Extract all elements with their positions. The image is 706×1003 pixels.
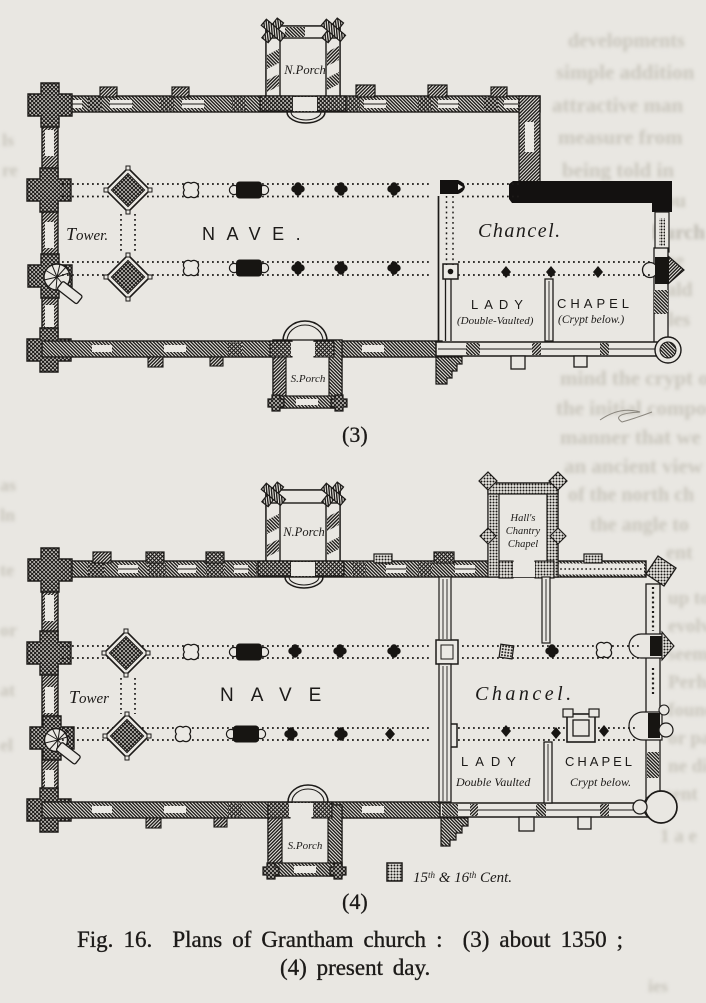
svg-text:15th & 16th Cent.: 15th & 16th Cent.	[413, 870, 512, 886]
svg-text:Chantry: Chantry	[506, 526, 541, 537]
svg-text:Double Vaulted: Double Vaulted	[455, 775, 531, 789]
svg-text:Crypt below.: Crypt below.	[570, 775, 631, 789]
svg-text:Hall's: Hall's	[510, 513, 536, 524]
svg-text:NAVE.: NAVE.	[202, 224, 312, 244]
svg-text:(3): (3)	[342, 422, 368, 447]
svg-text:(4): (4)	[342, 889, 368, 914]
svg-text:CHAPEL: CHAPEL	[557, 296, 633, 311]
svg-text:(Double-Vaulted): (Double-Vaulted)	[457, 315, 534, 327]
svg-text:N.Porch: N.Porch	[283, 63, 326, 77]
svg-text:S.Porch: S.Porch	[291, 373, 326, 385]
svg-text:Chapel: Chapel	[508, 539, 538, 550]
svg-text:S.Porch: S.Porch	[288, 840, 323, 852]
svg-text:CHAPEL: CHAPEL	[565, 754, 635, 769]
svg-text:LADY: LADY	[471, 297, 529, 312]
svg-text:LADY: LADY	[461, 754, 523, 769]
svg-text:Chancel.: Chancel.	[478, 220, 562, 242]
svg-text:(Crypt below.): (Crypt below.)	[558, 314, 624, 326]
svg-text:(4) present day.: (4) present day.	[280, 955, 430, 980]
svg-text:Fig. 16. Plans of Grantham ch: Fig. 16. Plans of Grantham church : (3) …	[77, 927, 623, 952]
svg-text:NAVE: NAVE	[220, 685, 338, 706]
svg-text:N.Porch: N.Porch	[282, 525, 325, 539]
svg-text:Chancel.: Chancel.	[475, 683, 575, 705]
